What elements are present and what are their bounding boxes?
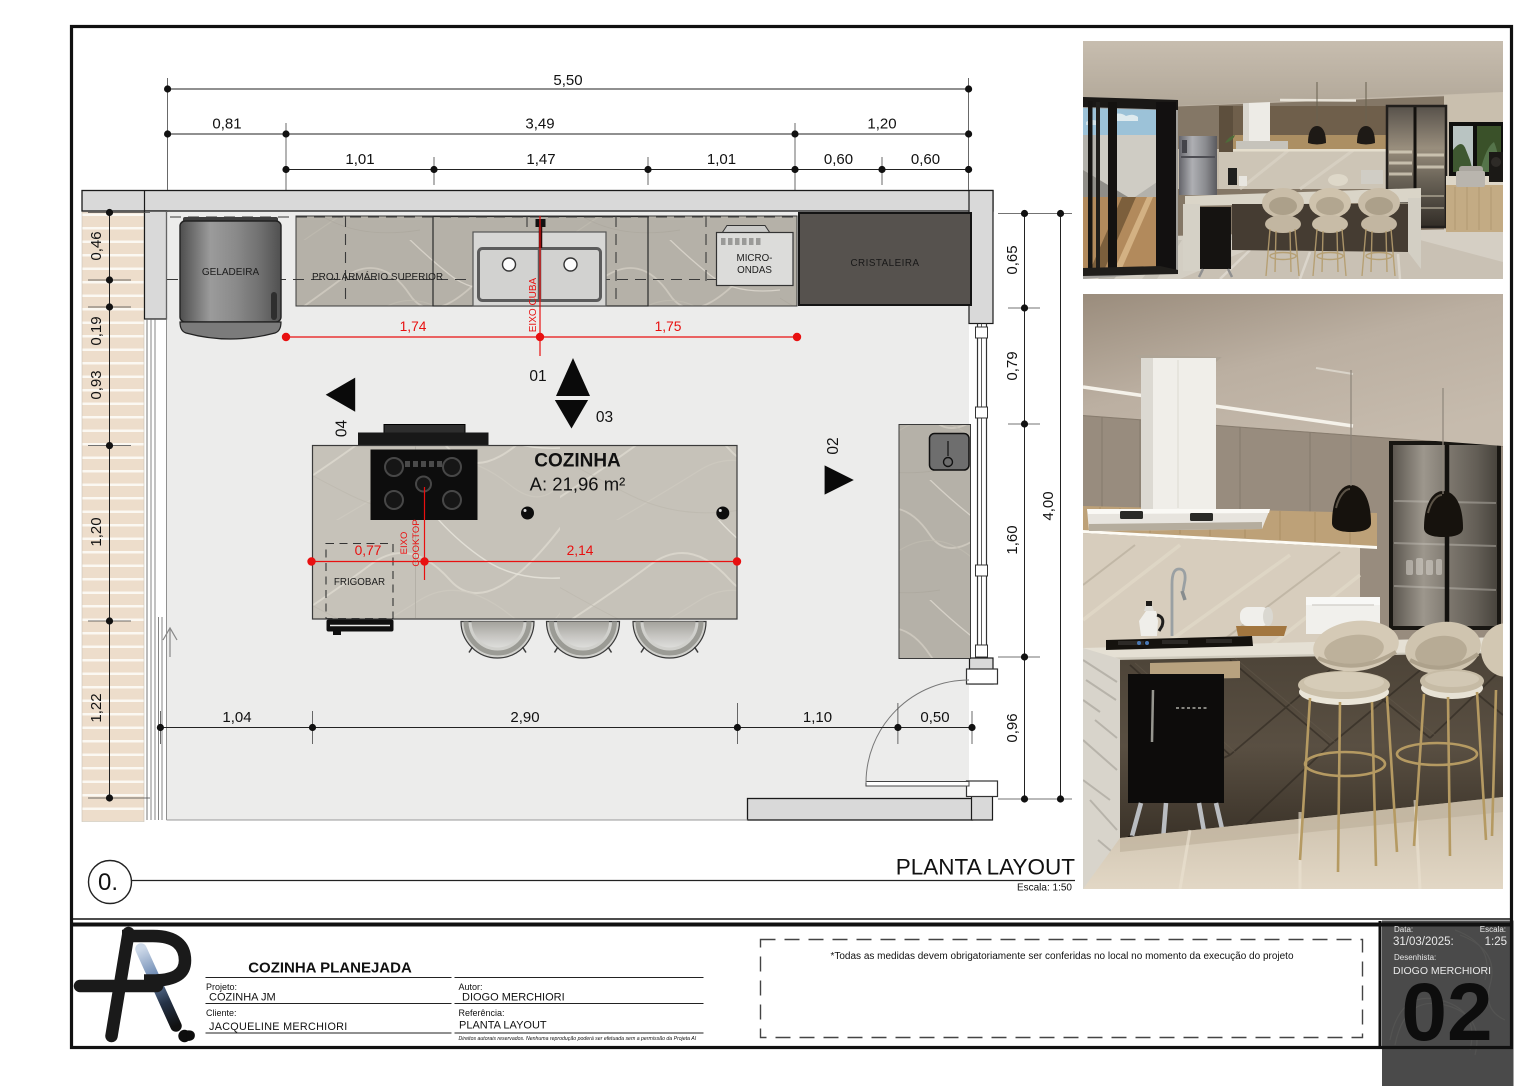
svg-text:PLANTA LAYOUT: PLANTA LAYOUT — [459, 1020, 547, 1032]
svg-text:2,90: 2,90 — [510, 709, 539, 726]
svg-text:0,60: 0,60 — [911, 151, 940, 168]
svg-text:1:25: 1:25 — [1485, 936, 1507, 948]
svg-text:0,81: 0,81 — [212, 116, 241, 133]
svg-text:JACQUELINE MERCHIORI: JACQUELINE MERCHIORI — [209, 1021, 348, 1033]
svg-text:Data:: Data: — [1394, 925, 1413, 934]
svg-text:1,47: 1,47 — [526, 151, 555, 168]
svg-text:A: 21,96 m²: A: 21,96 m² — [530, 474, 626, 495]
svg-text:02: 02 — [825, 437, 842, 454]
svg-text:1,60: 1,60 — [1004, 525, 1021, 554]
svg-text:1,20: 1,20 — [88, 517, 105, 546]
svg-text:CRISTALEIRA: CRISTALEIRA — [850, 258, 919, 269]
svg-text:COZINHA JM: COZINHA JM — [209, 992, 276, 1004]
svg-text:0,65: 0,65 — [1004, 245, 1021, 274]
svg-text:0,93: 0,93 — [88, 370, 105, 399]
svg-text:ONDAS: ONDAS — [737, 265, 772, 276]
svg-text:Desenhista:: Desenhista: — [1394, 953, 1436, 962]
svg-text:1,74: 1,74 — [400, 319, 427, 334]
svg-text:Escala:: Escala: — [1480, 925, 1506, 934]
svg-text:MICRO-: MICRO- — [737, 253, 773, 264]
svg-text:04: 04 — [334, 420, 351, 438]
svg-text:1,01: 1,01 — [707, 151, 736, 168]
svg-text:1,01: 1,01 — [345, 151, 374, 168]
svg-text:0,19: 0,19 — [88, 316, 105, 345]
svg-text:4,00: 4,00 — [1040, 491, 1057, 520]
svg-text:31/03/2025:: 31/03/2025: — [1393, 936, 1454, 948]
svg-text:0,46: 0,46 — [88, 231, 105, 260]
svg-text:Cliente:: Cliente: — [206, 1008, 237, 1018]
svg-text:Direitos autorais reservados.: Direitos autorais reservados. Nenhuma re… — [459, 1036, 697, 1042]
svg-text:5,50: 5,50 — [553, 72, 582, 89]
svg-text:EIXO: EIXO — [399, 532, 410, 555]
svg-text:3,49: 3,49 — [525, 116, 554, 133]
svg-text:0,60: 0,60 — [824, 151, 853, 168]
svg-text:2,14: 2,14 — [567, 543, 594, 558]
svg-text:0,50: 0,50 — [920, 709, 949, 726]
svg-text:COOKTOP: COOKTOP — [411, 519, 422, 566]
svg-text:1,20: 1,20 — [867, 116, 896, 133]
svg-text:PROJ.ARMÁRIO SUPERIOR: PROJ.ARMÁRIO SUPERIOR — [312, 270, 443, 283]
svg-text:0,79: 0,79 — [1004, 351, 1021, 380]
svg-text:Escala: 1:50: Escala: 1:50 — [1017, 883, 1072, 894]
svg-text:FRIGOBAR: FRIGOBAR — [334, 577, 385, 588]
svg-text:*Todas as medidas devem obriga: *Todas as medidas devem obrigatoriamente… — [830, 951, 1293, 962]
svg-text:02: 02 — [1401, 967, 1492, 1058]
svg-text:COZINHA: COZINHA — [534, 451, 621, 472]
svg-text:GELADEIRA: GELADEIRA — [202, 267, 260, 278]
svg-text:EIXO CUBA: EIXO CUBA — [528, 277, 539, 332]
svg-text:1,75: 1,75 — [655, 319, 682, 334]
svg-text:Autor:: Autor: — [459, 982, 483, 992]
svg-text:Referência:: Referência: — [459, 1008, 505, 1018]
svg-text:1,10: 1,10 — [803, 709, 832, 726]
svg-text:Projeto:: Projeto: — [206, 982, 237, 992]
svg-text:DIOGO MERCHIORI: DIOGO MERCHIORI — [462, 992, 565, 1004]
svg-text:03: 03 — [596, 409, 613, 426]
svg-text:0,77: 0,77 — [355, 543, 382, 558]
svg-text:0,96: 0,96 — [1004, 713, 1021, 742]
svg-text:1,04: 1,04 — [222, 709, 251, 726]
svg-text:0.: 0. — [98, 869, 118, 896]
svg-text:1,22: 1,22 — [88, 693, 105, 722]
svg-text:PLANTA LAYOUT: PLANTA LAYOUT — [896, 855, 1075, 880]
svg-text:01: 01 — [529, 368, 546, 385]
svg-text:COZINHA PLANEJADA: COZINHA PLANEJADA — [248, 960, 412, 977]
